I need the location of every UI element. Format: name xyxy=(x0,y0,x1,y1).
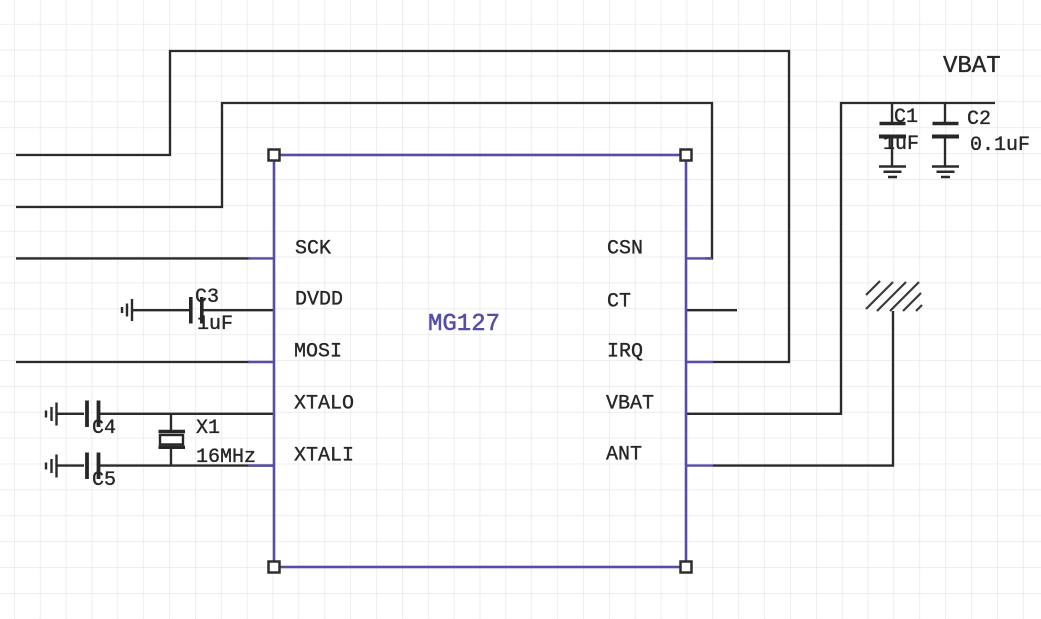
svg-text:C3: C3 xyxy=(195,286,219,309)
svg-text:ANT: ANT xyxy=(606,444,642,467)
svg-text:C5: C5 xyxy=(92,469,116,492)
svg-text:CSN: CSN xyxy=(607,238,643,261)
svg-text:XTALO: XTALO xyxy=(294,393,354,416)
svg-text:C2: C2 xyxy=(967,108,991,131)
svg-text:IRQ: IRQ xyxy=(607,341,643,364)
svg-text:CT: CT xyxy=(607,291,631,314)
svg-text:MG127: MG127 xyxy=(428,311,500,338)
svg-text:SCK: SCK xyxy=(295,238,331,261)
svg-text:1uF: 1uF xyxy=(197,313,233,336)
svg-text:0.1uF: 0.1uF xyxy=(970,134,1030,157)
svg-text:16MHz: 16MHz xyxy=(196,446,256,469)
svg-text:MOSI: MOSI xyxy=(294,341,342,364)
svg-text:X1: X1 xyxy=(196,417,220,440)
svg-text:C4: C4 xyxy=(92,417,116,440)
svg-text:VBAT: VBAT xyxy=(606,393,654,416)
svg-text:XTALI: XTALI xyxy=(294,445,354,468)
svg-text:C1: C1 xyxy=(894,106,918,129)
svg-text:DVDD: DVDD xyxy=(295,289,343,312)
svg-text:VBAT: VBAT xyxy=(943,53,1001,80)
svg-text:1uF: 1uF xyxy=(883,133,919,156)
